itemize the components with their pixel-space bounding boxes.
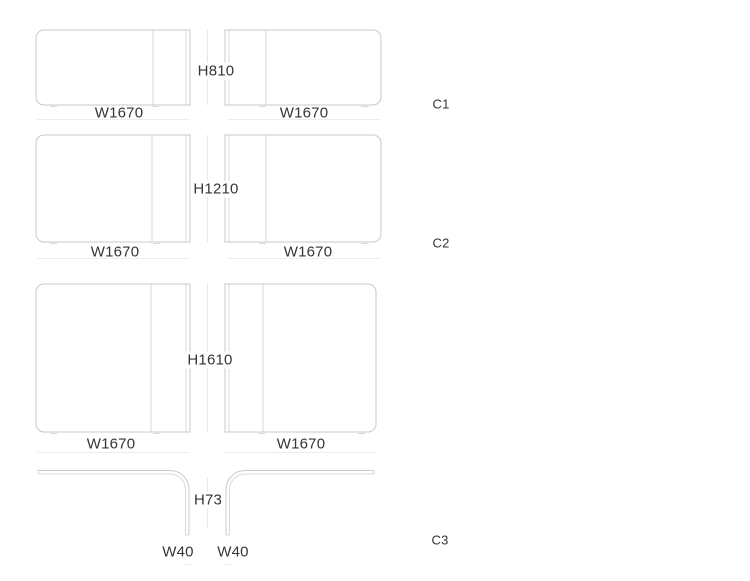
row1-height-label: H810 (195, 63, 238, 80)
row3-right-width-label: W1670 (277, 436, 326, 453)
dimension-diagram: H810 W1670 W1670 C1 H1210 W1670 W1670 C2… (0, 0, 750, 581)
row3-left-panel-drawing (36, 284, 190, 434)
row1-left-width-label: W1670 (95, 105, 144, 122)
row2-code-label: C2 (432, 236, 449, 251)
row2-right-panel-drawing (225, 135, 381, 244)
row4-code-label: C3 (431, 533, 448, 548)
row1-code-label: C1 (432, 97, 449, 112)
row2-height-label: H1210 (190, 181, 241, 198)
row1-right-panel-drawing (225, 30, 381, 107)
row4-right-trim-drawing (226, 471, 374, 536)
row1-left-panel-drawing (36, 30, 190, 107)
row3-right-panel-drawing (225, 284, 376, 434)
row4-right-width-label: W40 (217, 544, 248, 561)
row4-left-trim-drawing (38, 471, 189, 536)
row4-left-width-label: W40 (162, 544, 193, 561)
row2-left-width-label: W1670 (91, 244, 140, 261)
row4-height-label: H73 (191, 492, 225, 509)
row3-height-label: H1610 (184, 352, 235, 369)
row3-left-width-label: W1670 (87, 436, 136, 453)
diagram-canvas (0, 0, 750, 581)
row1-right-width-label: W1670 (280, 105, 329, 122)
row2-right-width-label: W1670 (284, 244, 333, 261)
row2-left-panel-drawing (36, 135, 190, 244)
